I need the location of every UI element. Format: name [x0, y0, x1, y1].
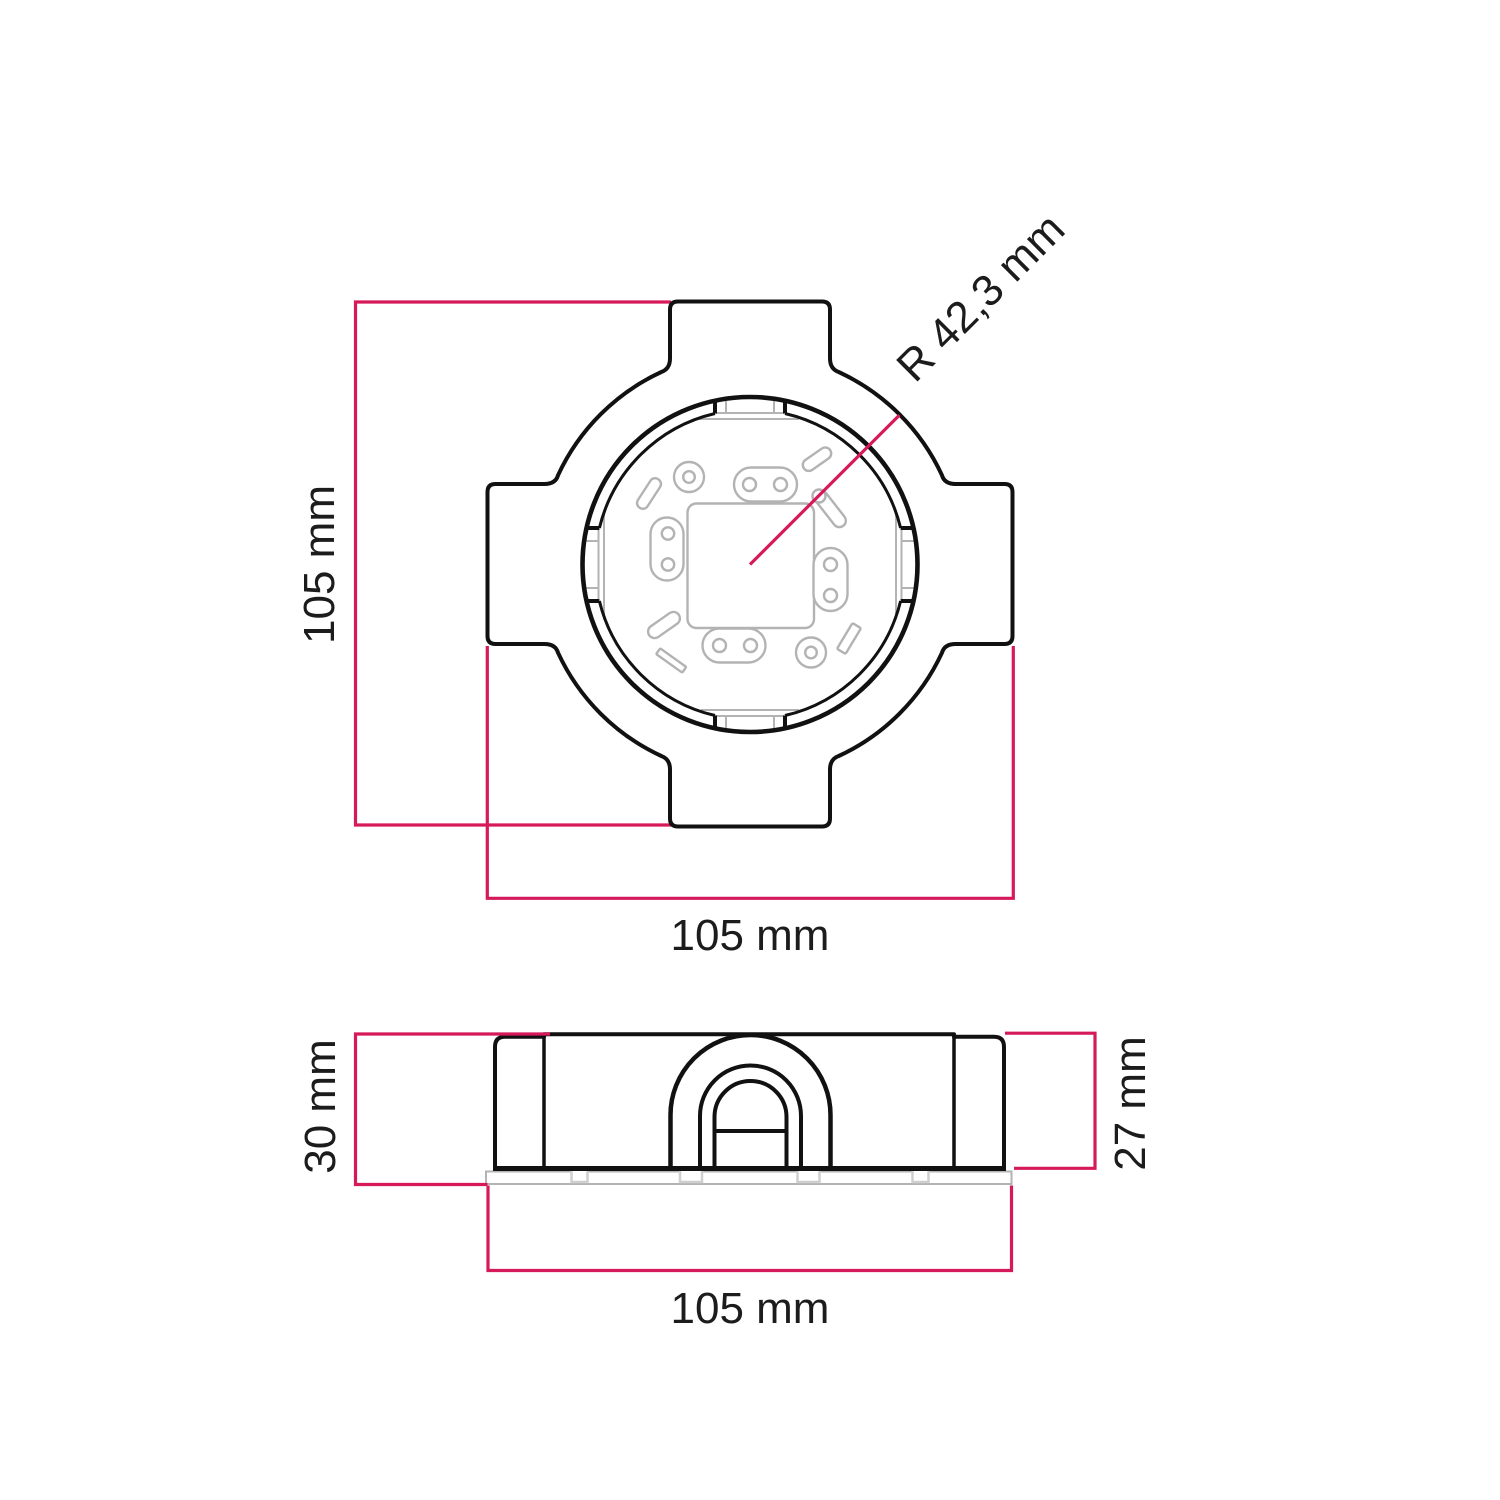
svg-text:30 mm: 30 mm	[296, 1039, 345, 1173]
svg-text:105 mm: 105 mm	[671, 911, 830, 960]
svg-text:105 mm: 105 mm	[671, 1284, 830, 1333]
svg-text:27 mm: 27 mm	[1106, 1036, 1155, 1170]
svg-text:105 mm: 105 mm	[295, 485, 344, 644]
